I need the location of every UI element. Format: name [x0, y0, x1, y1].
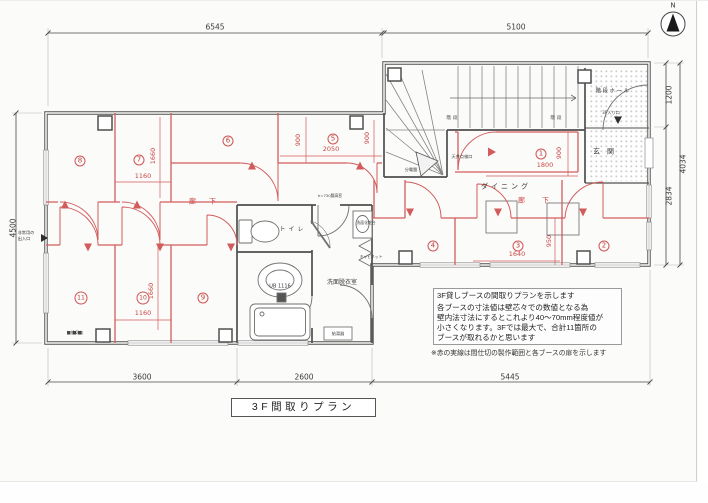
toilet-fixture — [239, 220, 279, 243]
note-line-1: 3F貸しブースの間取りプランを示します — [437, 291, 618, 301]
vanity-fixture — [353, 211, 372, 238]
note-line-4: 小さくなります。3Fでは最大で、合計11箇所の — [437, 323, 618, 333]
floorplan-drawing — [0, 0, 708, 503]
note-line-2: 各ブースの寸法値は壁芯々での数値となる為 — [437, 303, 618, 313]
floorplan-page: { "colors": {"partition_red": "#d25c5c",… — [0, 0, 708, 503]
note-footnote: ※赤の実線は間仕切の製作範囲と各ブースの扉を示します — [431, 347, 606, 357]
note-line-5: ブースが取れるかと思います — [437, 333, 618, 343]
note-line-3: 壁内法寸法にするとこれより40〜70mm程度値が — [437, 313, 618, 323]
note-box: 3F貸しブースの間取りプランを示します 各ブースの寸法値は壁芯々での数値となる為… — [433, 288, 622, 345]
vent-fan-symbol — [67, 331, 82, 335]
north-arrow-icon — [661, 12, 685, 36]
plan-title: 3F間取りプラン — [231, 398, 376, 417]
water-heater-box — [324, 327, 352, 340]
